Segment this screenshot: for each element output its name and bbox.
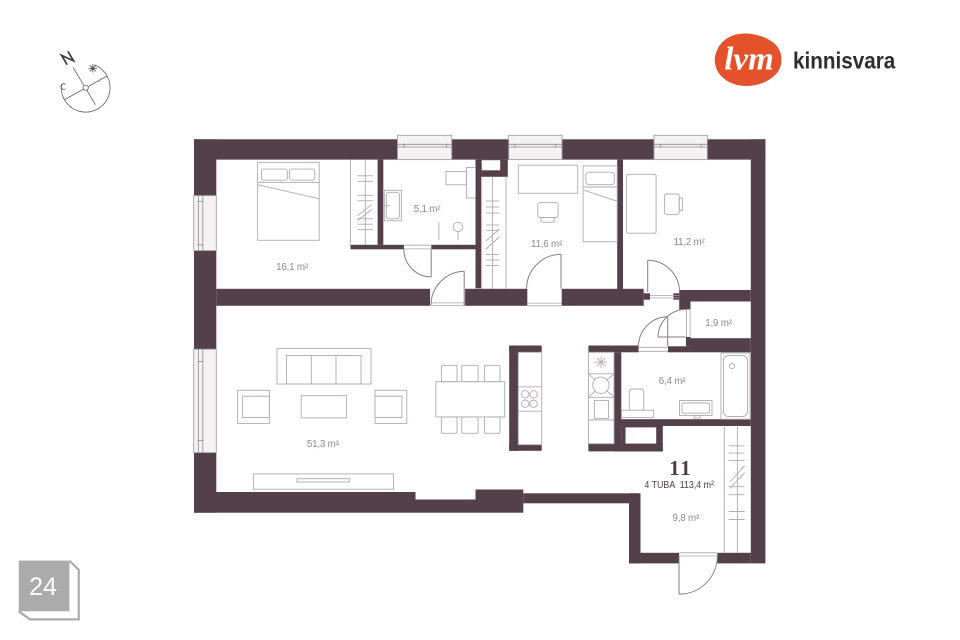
svg-text:11,6 m²: 11,6 m² <box>531 239 563 250</box>
svg-text:lvm: lvm <box>724 42 773 78</box>
svg-text:6,4 m²: 6,4 m² <box>659 376 687 387</box>
svg-text:4 TUBA 113,4 m²: 4 TUBA 113,4 m² <box>644 479 714 491</box>
svg-text:kinnisvara: kinnisvara <box>793 47 896 74</box>
svg-text:11: 11 <box>669 456 692 480</box>
svg-text:24: 24 <box>29 573 57 601</box>
svg-text:9,8 m²: 9,8 m² <box>673 513 701 524</box>
svg-text:5,1 m²: 5,1 m² <box>414 204 442 215</box>
svg-text:51,3 m²: 51,3 m² <box>307 439 340 450</box>
svg-text:11,2 m²: 11,2 m² <box>673 237 705 248</box>
svg-text:16,1 m²: 16,1 m² <box>276 262 309 273</box>
svg-text:1,9 m²: 1,9 m² <box>705 318 733 329</box>
